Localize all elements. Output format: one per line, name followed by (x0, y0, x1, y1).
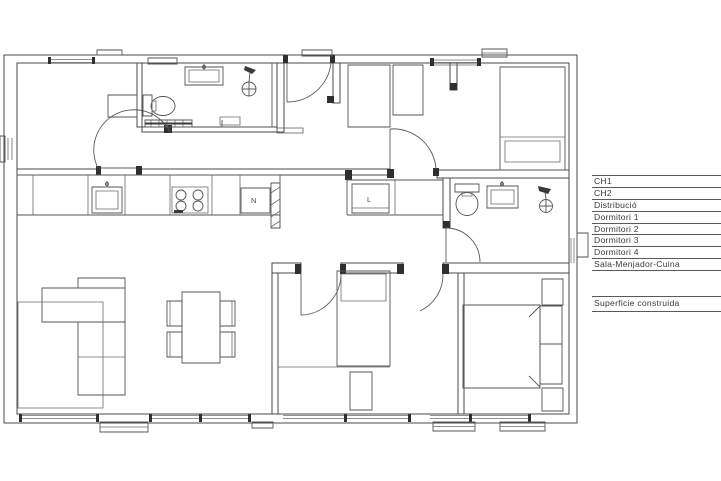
bedroom-top-right (500, 67, 565, 170)
bedroom-2-furniture (348, 65, 423, 127)
door-arc (94, 110, 170, 168)
toilet-icon (455, 184, 479, 216)
bedroom1-cabinet (108, 95, 137, 117)
legend-row-dormitori-2: Dormitori 2 (592, 224, 721, 236)
window-sill (97, 50, 122, 55)
legend-footer-superficie: Superficie construida (592, 296, 721, 312)
window-top-2 (430, 58, 481, 66)
bedroom-4-furniture (463, 279, 563, 411)
dining-table-icon (167, 292, 235, 363)
bed-icon (337, 271, 390, 366)
fridge-label: N (251, 196, 256, 205)
legend-table: CH1 CH2 Distribució Dormitori 1 Dormitor… (592, 175, 721, 271)
sofa-icon (18, 278, 125, 408)
window-left (0, 136, 12, 162)
counter-end-hatch (271, 183, 280, 228)
sink-icon (185, 64, 223, 85)
interior-walls (17, 63, 569, 414)
kitchen-sink-icon (92, 181, 122, 213)
fridge-box: N (241, 188, 270, 213)
washer-box: L (352, 184, 389, 213)
bed-icon (348, 65, 390, 127)
legend-row-dormitori-1: Dormitori 1 (592, 212, 721, 224)
kitchen-counter: N (17, 175, 280, 228)
washer-label: L (367, 195, 371, 204)
legend-row-dormitori-4: Dormitori 4 (592, 247, 721, 259)
bed-icon (500, 67, 565, 170)
laundry-counter: L (347, 180, 443, 215)
nightstand (542, 279, 563, 305)
floor-plan-page: N L (0, 0, 721, 481)
shower-icon (538, 186, 553, 213)
legend-row-dormitori-3: Dormitori 3 (592, 235, 721, 247)
wardrobe (393, 65, 423, 115)
exterior-walls (4, 55, 577, 423)
door-arc (301, 274, 341, 315)
legend-row-sala-menjador-cuina: Sala-Menjador-Cuina (592, 259, 721, 271)
bathroom-1 (108, 63, 272, 127)
double-bed-icon (463, 305, 562, 388)
window-right (571, 233, 588, 263)
window-sill (482, 49, 507, 57)
door-arc (390, 129, 436, 169)
window-bottom-bands (19, 414, 531, 422)
toilet-icon (143, 95, 175, 116)
door-arc (446, 228, 480, 262)
dresser (350, 372, 372, 410)
legend-row-ch2: CH2 (592, 188, 721, 200)
bedroom-3-furniture (278, 271, 390, 410)
stove-icon (172, 187, 208, 213)
bath-shelf (220, 117, 240, 125)
legend-row-distribucio: Distribució (592, 200, 721, 212)
entrance-door-arc (287, 63, 331, 102)
bathroom-2 (455, 181, 553, 216)
legend-row-ch1: CH1 (592, 176, 721, 188)
door-arc (420, 274, 443, 311)
sink-icon (487, 181, 518, 208)
nightstand (542, 388, 563, 411)
living-room-furniture (18, 278, 235, 408)
